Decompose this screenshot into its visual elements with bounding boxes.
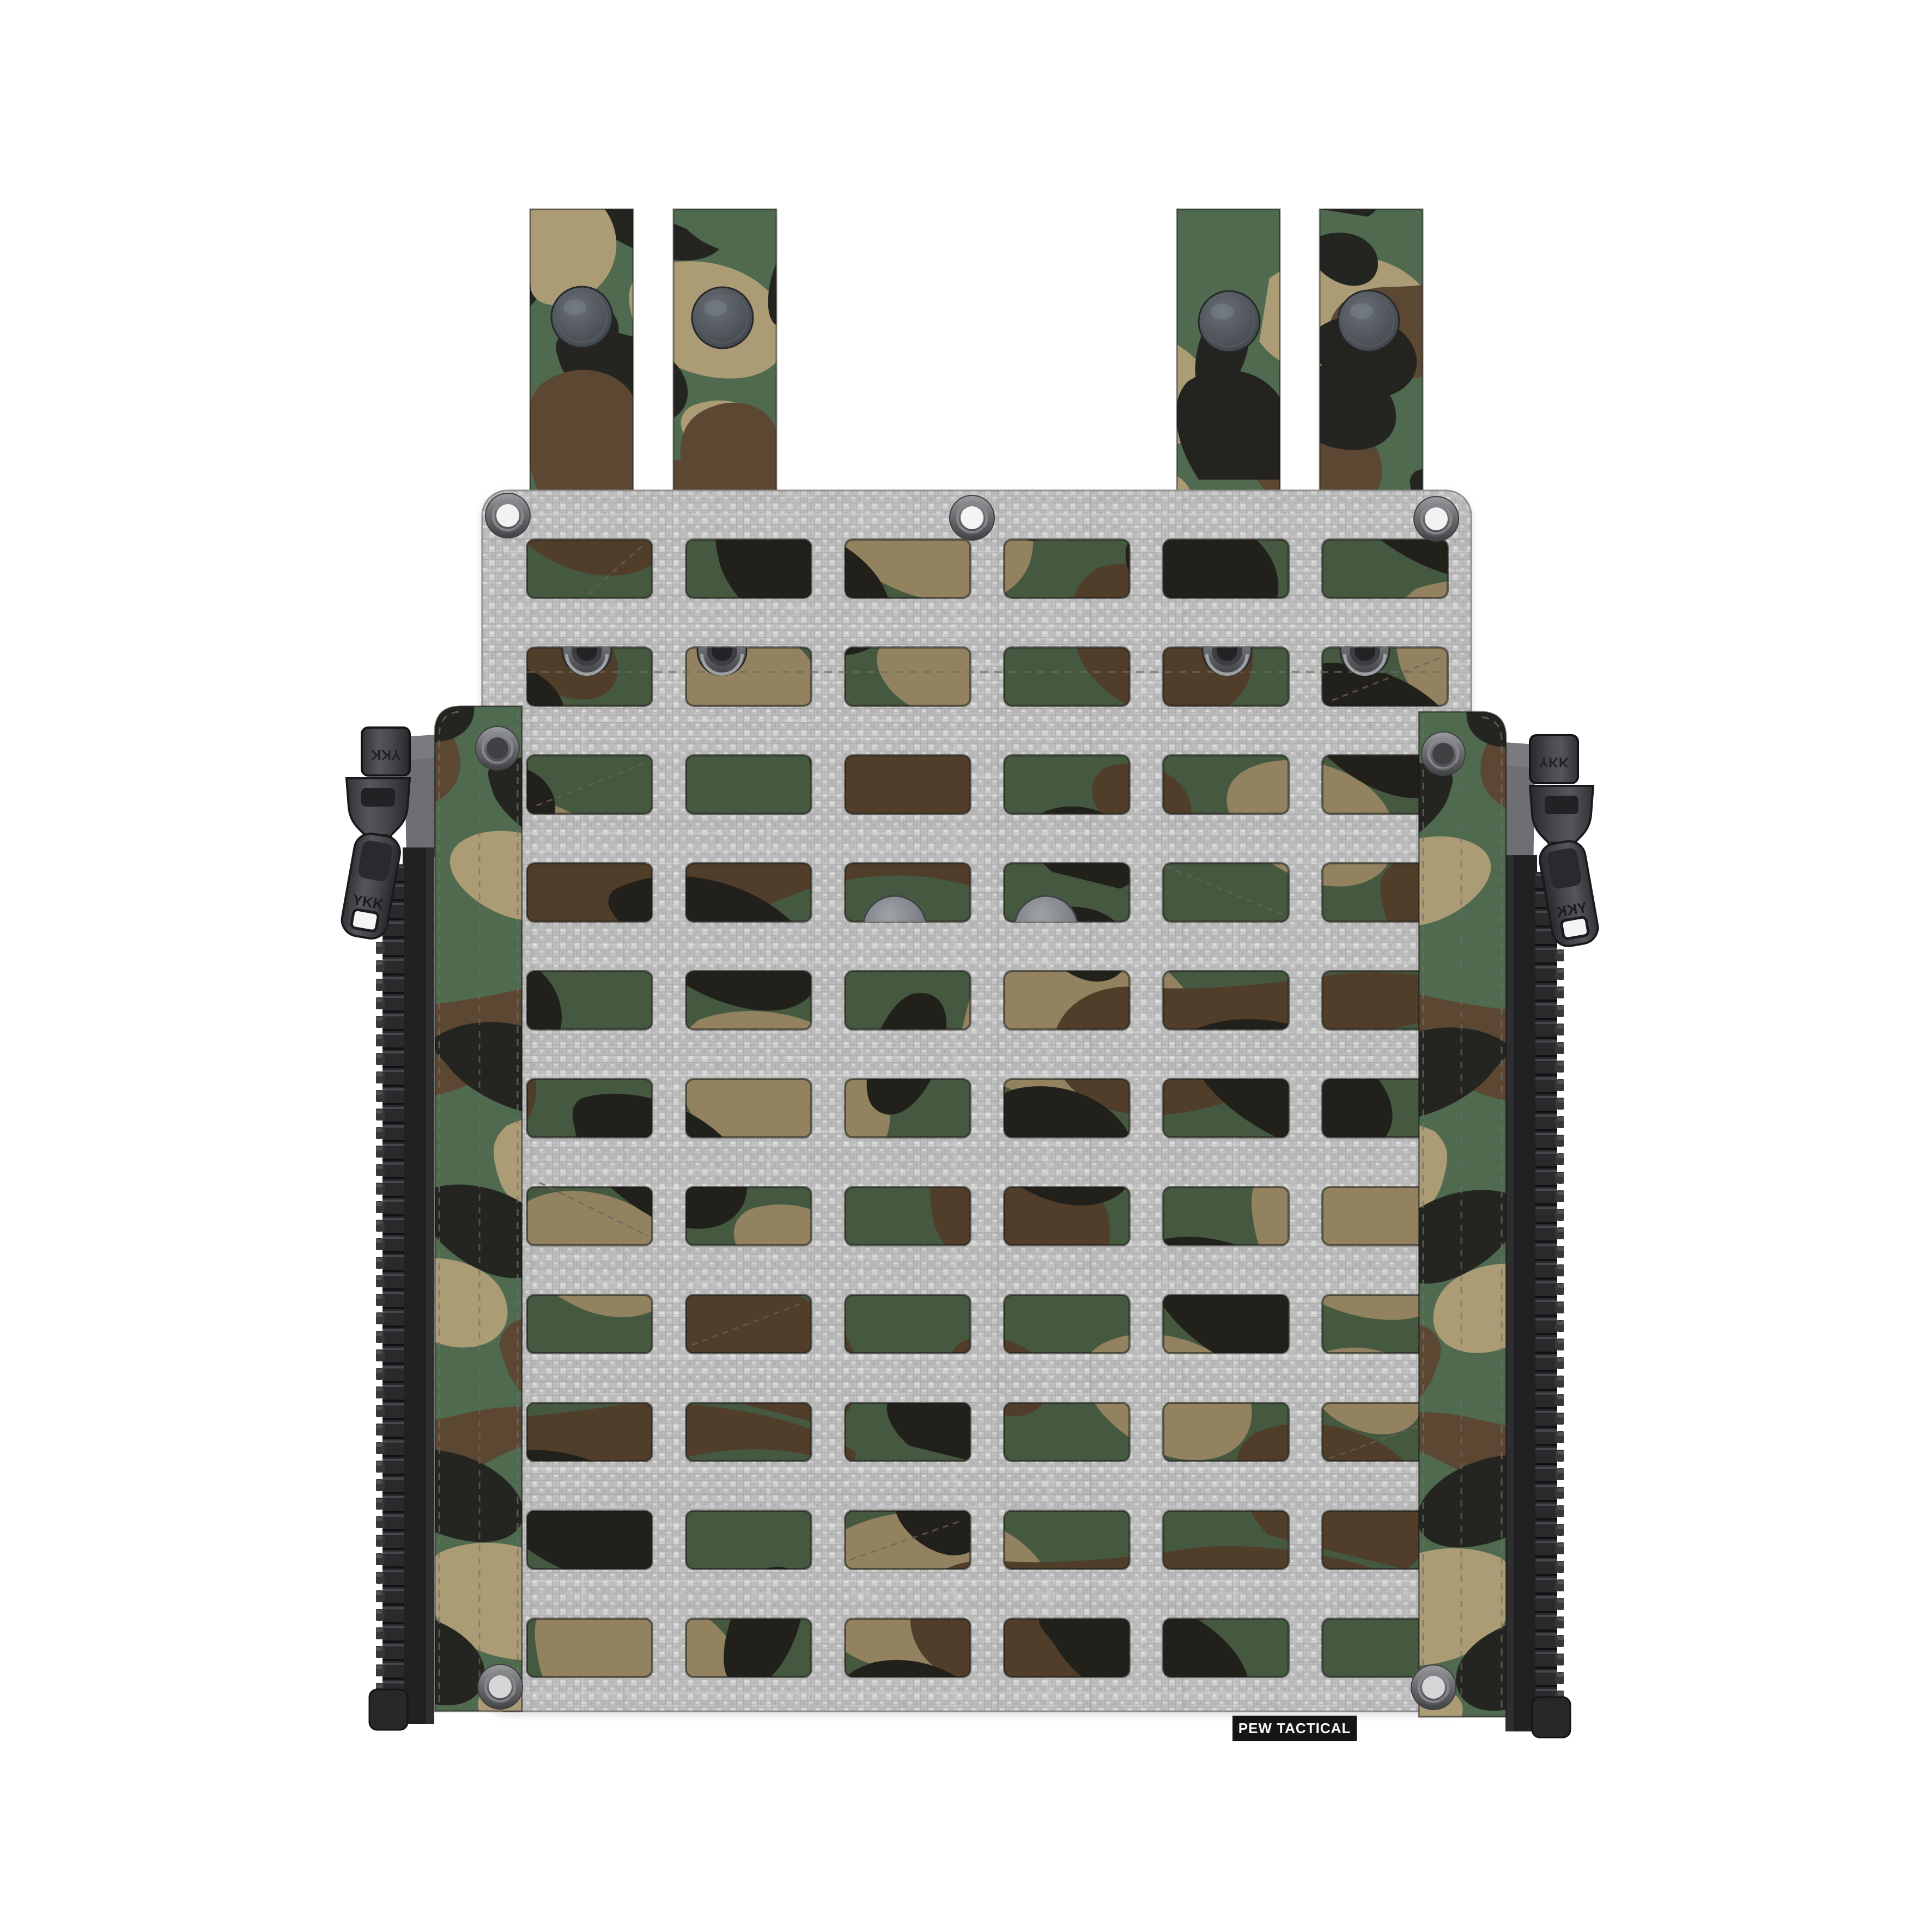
svg-text:YKK: YKK: [371, 747, 400, 763]
svg-text:PEW TACTICAL: PEW TACTICAL: [1238, 1720, 1351, 1736]
